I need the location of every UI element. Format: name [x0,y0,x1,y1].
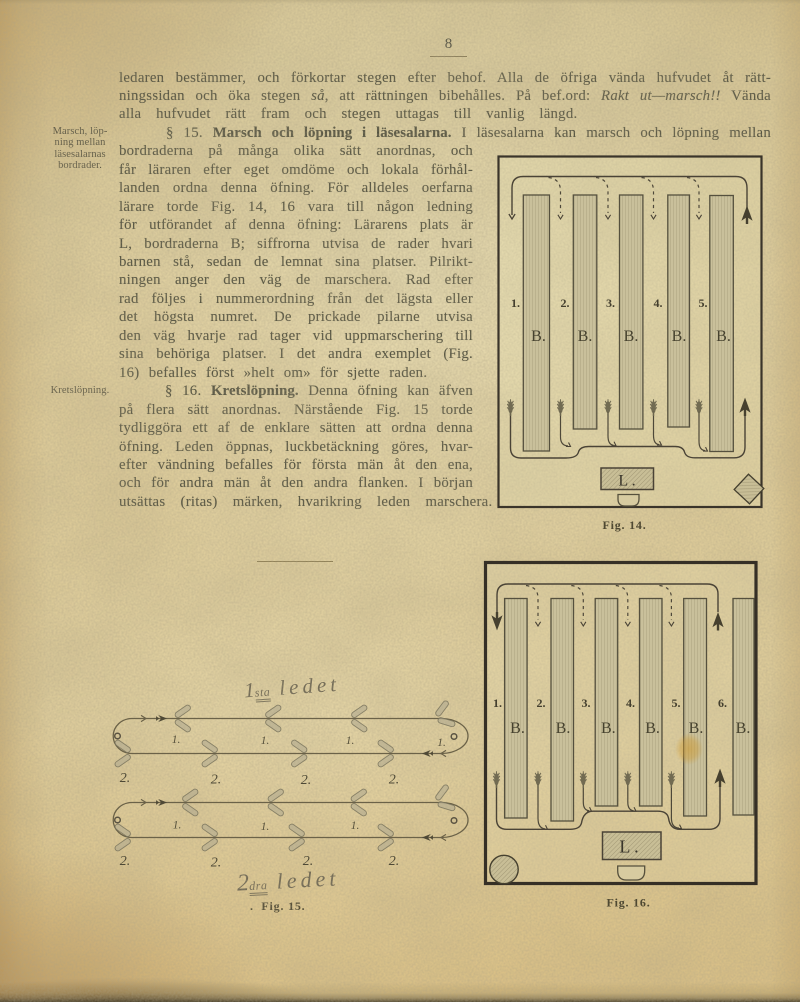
svg-text:Fig. 16.: Fig. 16. [606,896,650,910]
svg-text:5.: 5. [699,296,708,310]
svg-text:4.: 4. [654,296,663,310]
svg-text:2.: 2. [389,854,400,869]
svg-text:B.: B. [531,328,546,345]
svg-text:B.: B. [510,720,525,737]
svg-text:B.: B. [672,328,687,345]
svg-text:L .: L . [618,473,635,490]
svg-text:L .: L . [619,837,638,857]
svg-text:2.: 2. [120,771,131,786]
svg-text:2.: 2. [120,854,131,869]
svg-text:2.: 2. [537,696,546,710]
svg-text:1.: 1. [346,735,355,747]
svg-text:5.: 5. [672,696,681,710]
svg-text:B.: B. [578,328,593,345]
svg-text:2.: 2. [211,773,222,788]
svg-text:1.: 1. [493,696,502,710]
svg-text:4.: 4. [626,696,635,710]
svg-text:3.: 3. [582,696,591,710]
svg-text:B.: B. [716,328,731,345]
svg-text:2.: 2. [211,856,222,871]
svg-text:1.: 1. [172,734,181,746]
svg-text:3.: 3. [606,296,615,310]
svg-text:1.: 1. [437,737,446,749]
svg-text:2.: 2. [561,296,570,310]
svg-text:1.: 1. [511,296,520,310]
svg-text:2.: 2. [301,773,312,788]
svg-text:6.: 6. [718,696,727,710]
svg-text:B.: B. [601,720,616,737]
svg-text:1.: 1. [173,820,182,832]
svg-text:2.: 2. [389,773,400,788]
svg-text:B.: B. [689,720,704,737]
svg-text:B.: B. [645,720,660,737]
svg-text:1.: 1. [351,820,360,832]
svg-text:Fig. 14.: Fig. 14. [602,518,646,532]
svg-text:1.: 1. [261,821,270,833]
svg-text:B.: B. [624,328,639,345]
svg-text:B.: B. [556,720,571,737]
svg-text:1.: 1. [261,735,270,747]
svg-text:B.: B. [736,720,751,737]
